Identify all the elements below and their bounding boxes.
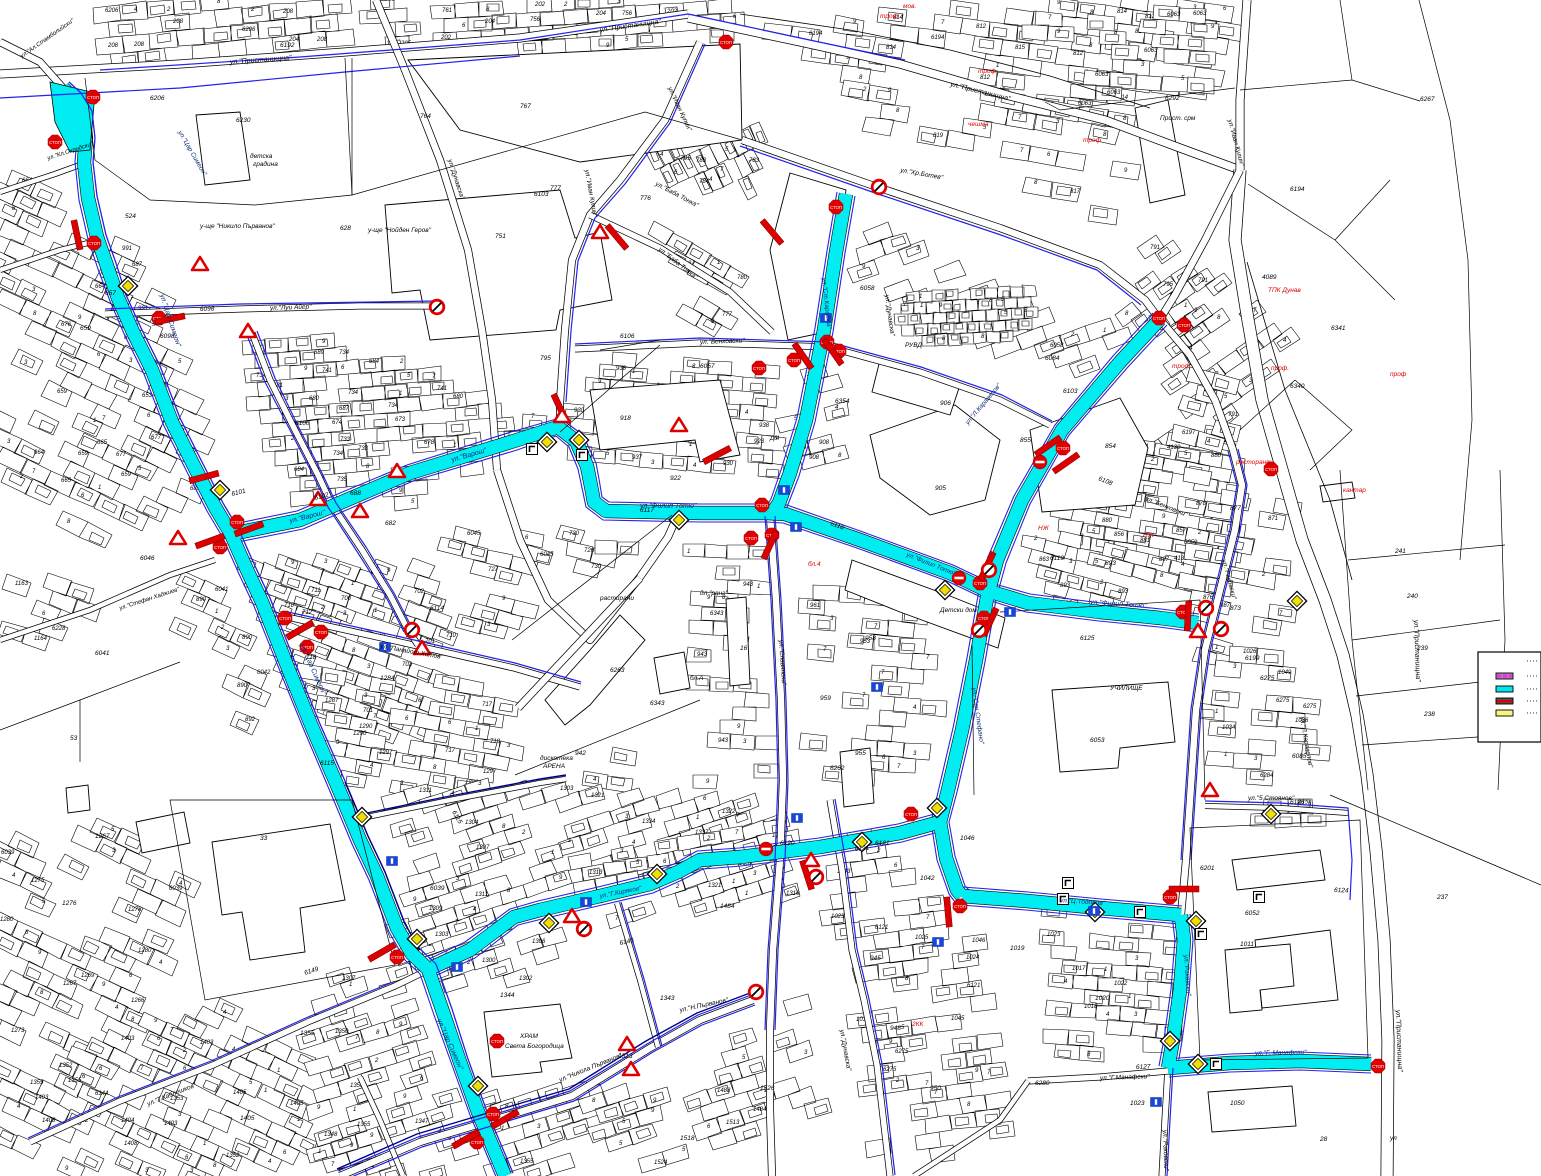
svg-text:2: 2 xyxy=(675,884,680,890)
svg-text:892: 892 xyxy=(245,717,256,723)
svg-text:РУВД: РУВД xyxy=(905,342,922,349)
svg-text:6119: 6119 xyxy=(1050,555,1064,562)
svg-text:троф: троф xyxy=(1083,137,1102,144)
svg-text:бл.А: бл.А xyxy=(690,674,703,682)
svg-text:ХРАМ: ХРАМ xyxy=(519,1033,538,1040)
svg-text:1: 1 xyxy=(687,549,690,555)
svg-text:растирани: растирани xyxy=(599,595,634,602)
svg-text:2: 2 xyxy=(220,625,225,631)
svg-text:2: 2 xyxy=(182,1048,187,1054)
svg-text:1280: 1280 xyxy=(0,917,14,923)
svg-text:777: 777 xyxy=(722,312,733,318)
svg-text:троф: троф xyxy=(978,68,997,75)
svg-text:795: 795 xyxy=(680,155,691,162)
svg-text:1: 1 xyxy=(475,726,478,732)
svg-text:871: 871 xyxy=(1268,516,1278,522)
svg-text:6039: 6039 xyxy=(430,885,445,892)
svg-text:детска: детска xyxy=(250,152,273,160)
svg-text:CTOП: CTOП xyxy=(214,545,226,550)
svg-text:1408: 1408 xyxy=(42,1118,56,1124)
svg-text:CTOП: CTOП xyxy=(954,904,966,909)
svg-text:1: 1 xyxy=(772,833,775,839)
svg-text:6063: 6063 xyxy=(1167,12,1181,18)
svg-text:CTOП: CTOП xyxy=(1164,895,1176,900)
svg-text:4130: 4130 xyxy=(1167,445,1181,451)
svg-text:240: 240 xyxy=(1406,593,1418,600)
svg-text:1408: 1408 xyxy=(124,1141,138,1147)
svg-text:930: 930 xyxy=(574,408,585,414)
svg-text:730: 730 xyxy=(591,564,602,570)
svg-text:710: 710 xyxy=(284,603,295,609)
svg-text:659: 659 xyxy=(57,389,68,395)
svg-text:CTOП: CTOП xyxy=(756,503,768,508)
svg-text:1: 1 xyxy=(919,294,922,300)
svg-text:CTOП: CTOП xyxy=(487,1112,499,1117)
svg-text:1: 1 xyxy=(93,418,96,424)
svg-text:890: 890 xyxy=(196,597,207,603)
svg-text:6058: 6058 xyxy=(1050,343,1064,349)
svg-text:204: 204 xyxy=(484,19,496,25)
svg-text:6098: 6098 xyxy=(200,305,215,313)
svg-text:1303: 1303 xyxy=(560,786,574,792)
svg-text:689: 689 xyxy=(314,350,325,356)
svg-text:930: 930 xyxy=(723,461,734,467)
svg-text:6354: 6354 xyxy=(835,398,850,405)
svg-text:943: 943 xyxy=(743,582,754,588)
svg-text:238: 238 xyxy=(1423,711,1435,718)
svg-text:6201: 6201 xyxy=(1200,865,1215,872)
svg-text:943: 943 xyxy=(718,738,729,744)
svg-text:2: 2 xyxy=(374,1058,379,1064)
svg-text:6053: 6053 xyxy=(1090,737,1105,744)
svg-text:1300: 1300 xyxy=(482,958,496,964)
svg-text:1022: 1022 xyxy=(1114,981,1128,987)
svg-text:ТПК Дунав: ТПК Дунав xyxy=(1268,287,1301,294)
svg-text:711: 711 xyxy=(311,588,321,594)
svg-text:855: 855 xyxy=(1020,437,1031,444)
svg-text:6041: 6041 xyxy=(95,650,110,657)
svg-text:проф: проф xyxy=(1390,371,1407,378)
svg-text:6275: 6275 xyxy=(883,1067,897,1073)
svg-text:16: 16 xyxy=(740,645,748,652)
svg-text:1: 1 xyxy=(399,391,402,397)
svg-text:6275: 6275 xyxy=(895,1049,909,1055)
svg-text:893: 893 xyxy=(1060,583,1071,589)
svg-text:1355: 1355 xyxy=(520,1159,534,1165)
svg-text:1: 1 xyxy=(203,1141,206,1147)
svg-text:863: 863 xyxy=(1039,557,1050,563)
svg-text:208: 208 xyxy=(107,43,119,49)
svg-text:1290: 1290 xyxy=(353,731,367,737)
svg-text:1: 1 xyxy=(996,63,999,69)
svg-text:854: 854 xyxy=(1105,443,1116,450)
svg-text:702: 702 xyxy=(414,589,425,595)
svg-text:2: 2 xyxy=(320,605,325,611)
svg-text:817: 817 xyxy=(1070,189,1081,195)
svg-text:918: 918 xyxy=(620,415,631,422)
svg-text:троф: троф xyxy=(880,13,899,20)
svg-text:680: 680 xyxy=(453,394,464,400)
svg-text:937: 937 xyxy=(632,455,643,461)
svg-text:878: 878 xyxy=(1196,501,1207,507)
svg-text:1: 1 xyxy=(98,485,101,491)
svg-text:1019: 1019 xyxy=(1010,945,1025,952)
svg-text:6292: 6292 xyxy=(1165,95,1180,102)
svg-text:2КК: 2КК xyxy=(911,1021,924,1028)
svg-text:761: 761 xyxy=(442,8,452,14)
svg-text:2: 2 xyxy=(876,848,881,854)
svg-text:688: 688 xyxy=(350,490,361,497)
svg-text:1267: 1267 xyxy=(95,833,110,840)
svg-text:908: 908 xyxy=(819,440,830,446)
svg-text:28: 28 xyxy=(1319,1136,1328,1143)
svg-text:6263: 6263 xyxy=(610,667,625,674)
svg-text:1: 1 xyxy=(215,609,218,615)
svg-text:ул."Раковски": ул."Раковски" xyxy=(1161,1129,1169,1172)
svg-text:1: 1 xyxy=(1215,645,1218,651)
svg-text:1524: 1524 xyxy=(654,1160,668,1166)
svg-text:1355: 1355 xyxy=(357,1122,371,1128)
svg-text:CTOП: CTOП xyxy=(788,358,800,363)
svg-text:CTOП: CTOП xyxy=(471,1140,483,1145)
svg-text:1321: 1321 xyxy=(591,793,604,799)
svg-text:1290: 1290 xyxy=(359,724,373,730)
svg-text:1045: 1045 xyxy=(951,1016,965,1022)
svg-text:1302: 1302 xyxy=(519,976,533,982)
svg-text:1403: 1403 xyxy=(121,1036,135,1042)
svg-text:1287: 1287 xyxy=(325,698,339,704)
svg-text:958: 958 xyxy=(865,635,876,642)
svg-text:730: 730 xyxy=(569,531,580,537)
svg-text:1484: 1484 xyxy=(720,903,735,910)
svg-text:6042: 6042 xyxy=(257,670,271,676)
svg-text:6343: 6343 xyxy=(710,611,724,617)
svg-text:6343: 6343 xyxy=(650,700,665,707)
svg-text:890: 890 xyxy=(242,635,253,641)
svg-text:857: 857 xyxy=(1176,528,1187,534)
svg-text:1313: 1313 xyxy=(589,870,603,876)
svg-text:791: 791 xyxy=(1150,245,1160,251)
svg-text:727: 727 xyxy=(488,567,499,573)
svg-text:троф: троф xyxy=(1172,363,1191,370)
svg-text:ул."Г. Манафски": ул."Г. Манафски" xyxy=(1254,1049,1307,1057)
svg-text:2: 2 xyxy=(1150,457,1155,463)
svg-text:812: 812 xyxy=(980,75,991,81)
svg-text:880: 880 xyxy=(1211,453,1222,459)
svg-text:1023: 1023 xyxy=(1047,932,1061,938)
svg-text:6194: 6194 xyxy=(1290,186,1305,193)
svg-text:CTOП: CTOП xyxy=(1153,316,1165,321)
svg-text:897: 897 xyxy=(1159,557,1170,563)
svg-text:6052: 6052 xyxy=(1245,910,1260,917)
svg-text:1: 1 xyxy=(277,1068,280,1074)
svg-text:208: 208 xyxy=(133,42,145,48)
svg-text:6058: 6058 xyxy=(860,285,875,292)
svg-text:6124: 6124 xyxy=(1334,887,1349,895)
svg-text:922: 922 xyxy=(670,475,681,482)
svg-text:CTOП: CTOП xyxy=(231,520,243,525)
svg-text:767: 767 xyxy=(520,103,531,110)
svg-text:680: 680 xyxy=(309,396,320,402)
svg-text:1: 1 xyxy=(1128,994,1131,1000)
svg-text:53: 53 xyxy=(70,735,78,742)
svg-text:1304: 1304 xyxy=(465,820,479,826)
svg-text:1280: 1280 xyxy=(138,948,152,954)
svg-text:756: 756 xyxy=(385,0,396,3)
svg-text:659: 659 xyxy=(78,451,89,457)
svg-text:1: 1 xyxy=(717,260,720,266)
svg-text:795: 795 xyxy=(1163,282,1174,288)
svg-text:CTOП: CTOП xyxy=(905,812,917,817)
svg-text:776: 776 xyxy=(640,195,651,202)
svg-text:6103: 6103 xyxy=(534,191,549,198)
svg-text:CTOП: CTOП xyxy=(830,205,842,210)
svg-text:6041: 6041 xyxy=(215,587,228,593)
svg-text:906: 906 xyxy=(940,400,951,407)
svg-text:684: 684 xyxy=(294,467,305,473)
svg-text:819: 819 xyxy=(933,133,944,139)
svg-text:677: 677 xyxy=(116,452,127,458)
svg-text:у-ще "Никило Първанов": у-ще "Никило Първанов" xyxy=(199,223,276,230)
svg-text:241: 241 xyxy=(1394,548,1406,555)
svg-text:682: 682 xyxy=(385,520,396,527)
svg-text:6267: 6267 xyxy=(1420,96,1435,103)
svg-text:6206: 6206 xyxy=(105,8,119,14)
svg-text:6206: 6206 xyxy=(150,95,165,102)
svg-text:677: 677 xyxy=(151,435,162,441)
svg-text:908: 908 xyxy=(809,455,820,461)
svg-text:718: 718 xyxy=(490,739,501,745)
svg-text:1024: 1024 xyxy=(966,955,980,961)
svg-text:1: 1 xyxy=(1184,303,1187,309)
svg-text:1: 1 xyxy=(757,584,760,590)
svg-text:1343: 1343 xyxy=(660,995,675,1002)
svg-text:734: 734 xyxy=(388,403,399,409)
svg-text:6125: 6125 xyxy=(1080,635,1095,642)
svg-text:6057: 6057 xyxy=(700,363,715,370)
svg-text:1: 1 xyxy=(264,1088,267,1094)
svg-text:Прист. срм: Прист. срм xyxy=(1160,115,1196,122)
svg-text:955: 955 xyxy=(855,750,866,757)
svg-text:733: 733 xyxy=(358,446,369,452)
svg-text:1526: 1526 xyxy=(760,1085,775,1092)
svg-text:783: 783 xyxy=(749,158,760,164)
svg-text:1046: 1046 xyxy=(960,835,975,842)
svg-text:у-ще "Нойден Геров": у-ще "Нойден Геров" xyxy=(367,226,432,234)
svg-text:дл "ранг": дл "ранг" xyxy=(700,589,728,597)
svg-text:208: 208 xyxy=(172,19,184,25)
svg-text:CTOП: CTOП xyxy=(753,366,765,371)
svg-text:1020: 1020 xyxy=(1095,995,1110,1002)
svg-text:1275: 1275 xyxy=(31,878,45,884)
svg-text:6120: 6120 xyxy=(780,840,795,847)
svg-text:1050: 1050 xyxy=(1230,1100,1245,1107)
svg-text:777: 777 xyxy=(550,185,561,192)
svg-text:6262: 6262 xyxy=(830,765,845,772)
svg-text:1352: 1352 xyxy=(59,1063,73,1069)
svg-text:1355: 1355 xyxy=(300,1030,315,1037)
svg-text:1: 1 xyxy=(501,1126,504,1132)
svg-text:2: 2 xyxy=(1033,536,1038,542)
svg-text:2: 2 xyxy=(895,1078,900,1084)
svg-text:791: 791 xyxy=(1228,412,1238,418)
svg-text:1513: 1513 xyxy=(726,1120,740,1126)
svg-text:CTOП: CTOП xyxy=(1372,1064,1384,1069)
svg-text:2: 2 xyxy=(250,7,255,13)
svg-text:1: 1 xyxy=(1103,328,1106,334)
svg-text:687: 687 xyxy=(132,262,143,268)
svg-text:6341: 6341 xyxy=(1331,325,1346,332)
svg-text:6275: 6275 xyxy=(1303,704,1317,710)
svg-text:676: 676 xyxy=(61,322,72,328)
svg-text:1403: 1403 xyxy=(200,1040,214,1046)
svg-text:1042: 1042 xyxy=(920,875,935,882)
svg-text:1011: 1011 xyxy=(1240,941,1254,948)
svg-text:1303: 1303 xyxy=(435,932,449,938)
svg-text:664: 664 xyxy=(34,450,45,456)
svg-text:1: 1 xyxy=(297,1117,300,1123)
svg-text:204: 204 xyxy=(595,11,607,17)
svg-text:6045: 6045 xyxy=(467,531,481,537)
svg-text:УЧИЛИЩЕ: УЧИЛИЩЕ xyxy=(1109,685,1143,692)
svg-text:CTOП: CTOП xyxy=(1178,323,1190,328)
svg-text:1309: 1309 xyxy=(429,906,443,912)
svg-text:ресторант: ресторант xyxy=(1235,459,1272,466)
svg-text:1297: 1297 xyxy=(379,750,393,756)
svg-text:1: 1 xyxy=(696,815,699,821)
svg-text:градина: градина xyxy=(253,160,278,168)
svg-text:1: 1 xyxy=(632,369,635,375)
svg-text:1284: 1284 xyxy=(380,675,395,682)
svg-text:628: 628 xyxy=(340,225,351,232)
svg-text:659: 659 xyxy=(80,325,91,332)
svg-text:2: 2 xyxy=(1070,332,1075,338)
svg-text:905: 905 xyxy=(935,485,946,492)
svg-text:2: 2 xyxy=(1197,530,1202,536)
svg-text:687: 687 xyxy=(339,406,350,412)
svg-text:812: 812 xyxy=(976,24,987,30)
svg-text:2: 2 xyxy=(399,359,404,365)
svg-text:CTOП: CTOП xyxy=(391,955,403,960)
svg-text:6046: 6046 xyxy=(140,555,155,562)
svg-text:1: 1 xyxy=(351,581,354,587)
svg-text:1: 1 xyxy=(920,303,923,309)
svg-text:1316: 1316 xyxy=(786,891,800,897)
svg-text:кантар: кантар xyxy=(1343,487,1366,494)
svg-text:873: 873 xyxy=(1230,605,1241,612)
svg-text:1: 1 xyxy=(568,838,571,844)
svg-text:1513: 1513 xyxy=(618,1053,633,1060)
svg-text:237: 237 xyxy=(1436,894,1448,901)
svg-text:1: 1 xyxy=(1224,752,1227,758)
svg-text:6117: 6117 xyxy=(640,507,654,514)
svg-text:2: 2 xyxy=(1261,572,1266,578)
svg-text:938: 938 xyxy=(759,423,770,429)
svg-text:6284: 6284 xyxy=(1260,773,1274,779)
svg-text:6121: 6121 xyxy=(967,983,980,989)
svg-text:1273: 1273 xyxy=(11,1028,25,1034)
svg-text:1307: 1307 xyxy=(476,845,490,851)
svg-text:6194: 6194 xyxy=(931,35,945,41)
svg-text:959: 959 xyxy=(820,695,831,702)
svg-text:6121: 6121 xyxy=(875,840,890,847)
svg-text:1: 1 xyxy=(374,608,377,614)
svg-text:6197: 6197 xyxy=(1182,430,1196,436)
svg-text:2: 2 xyxy=(19,474,24,480)
svg-text:6103: 6103 xyxy=(1063,388,1078,395)
svg-text:726: 726 xyxy=(584,548,595,554)
svg-text:33: 33 xyxy=(260,835,268,842)
svg-text:6063: 6063 xyxy=(1193,11,1207,17)
svg-text:948: 948 xyxy=(890,1025,901,1032)
svg-text:1297: 1297 xyxy=(483,769,497,775)
svg-text:814: 814 xyxy=(1117,9,1128,15)
svg-text:CTOП: CTOП xyxy=(491,1039,503,1044)
svg-text:1311: 1311 xyxy=(419,788,432,794)
svg-text:1484: 1484 xyxy=(753,1107,767,1113)
svg-text:1348: 1348 xyxy=(324,1132,338,1138)
svg-text:2: 2 xyxy=(521,830,526,836)
svg-text:6194: 6194 xyxy=(809,31,823,37)
svg-text:НЖ: НЖ xyxy=(1038,525,1050,532)
svg-text:893: 893 xyxy=(1105,560,1116,567)
svg-text:CTOП: CTOП xyxy=(49,140,61,145)
svg-text:6121: 6121 xyxy=(875,925,888,931)
svg-text:Д 4: Д 4 xyxy=(769,436,780,442)
svg-text:ул."5 Стоянов": ул."5 Стоянов" xyxy=(1247,795,1295,802)
svg-text:945: 945 xyxy=(870,955,881,962)
svg-text:700: 700 xyxy=(341,596,352,602)
svg-text:961: 961 xyxy=(810,603,820,609)
svg-text:6114: 6114 xyxy=(430,605,444,612)
svg-text:208: 208 xyxy=(316,37,328,43)
svg-text:6280: 6280 xyxy=(1035,1080,1050,1087)
svg-text:2: 2 xyxy=(862,87,867,93)
svg-text:6115: 6115 xyxy=(320,760,334,767)
svg-text:1023: 1023 xyxy=(1130,1100,1145,1107)
svg-text:CTOП: CTOП xyxy=(720,40,732,45)
svg-text:1276: 1276 xyxy=(62,900,77,907)
svg-text:717: 717 xyxy=(482,702,493,708)
svg-text:734: 734 xyxy=(348,390,359,396)
svg-text:1017: 1017 xyxy=(1072,966,1086,972)
svg-text:1: 1 xyxy=(689,442,692,448)
svg-text:780: 780 xyxy=(737,275,748,281)
svg-text:1: 1 xyxy=(318,1149,321,1155)
svg-text:1405: 1405 xyxy=(233,1090,247,1096)
svg-text:проф.: проф. xyxy=(1271,365,1289,372)
svg-text:чешма: чешма xyxy=(968,121,989,128)
svg-text:ул: ул xyxy=(1389,1135,1397,1142)
svg-text:6063: 6063 xyxy=(1095,72,1109,78)
svg-text:6085: 6085 xyxy=(1292,753,1307,760)
svg-text:CTOП: CTOП xyxy=(1265,467,1277,472)
svg-text:678: 678 xyxy=(424,440,435,446)
svg-text:1347: 1347 xyxy=(415,1119,429,1125)
svg-text:6192: 6192 xyxy=(280,42,295,49)
svg-text:6100: 6100 xyxy=(295,420,310,427)
svg-text:710: 710 xyxy=(446,633,457,639)
svg-text:1321: 1321 xyxy=(708,883,721,889)
svg-text:741: 741 xyxy=(437,386,447,392)
svg-text:6228: 6228 xyxy=(52,626,66,632)
svg-text:950: 950 xyxy=(930,1085,941,1092)
svg-text:Света Богородица: Света Богородица xyxy=(505,1042,564,1050)
svg-text:1023: 1023 xyxy=(831,914,845,920)
svg-text:2: 2 xyxy=(706,836,711,842)
svg-text:1334: 1334 xyxy=(642,819,656,825)
svg-text:2: 2 xyxy=(563,2,568,8)
